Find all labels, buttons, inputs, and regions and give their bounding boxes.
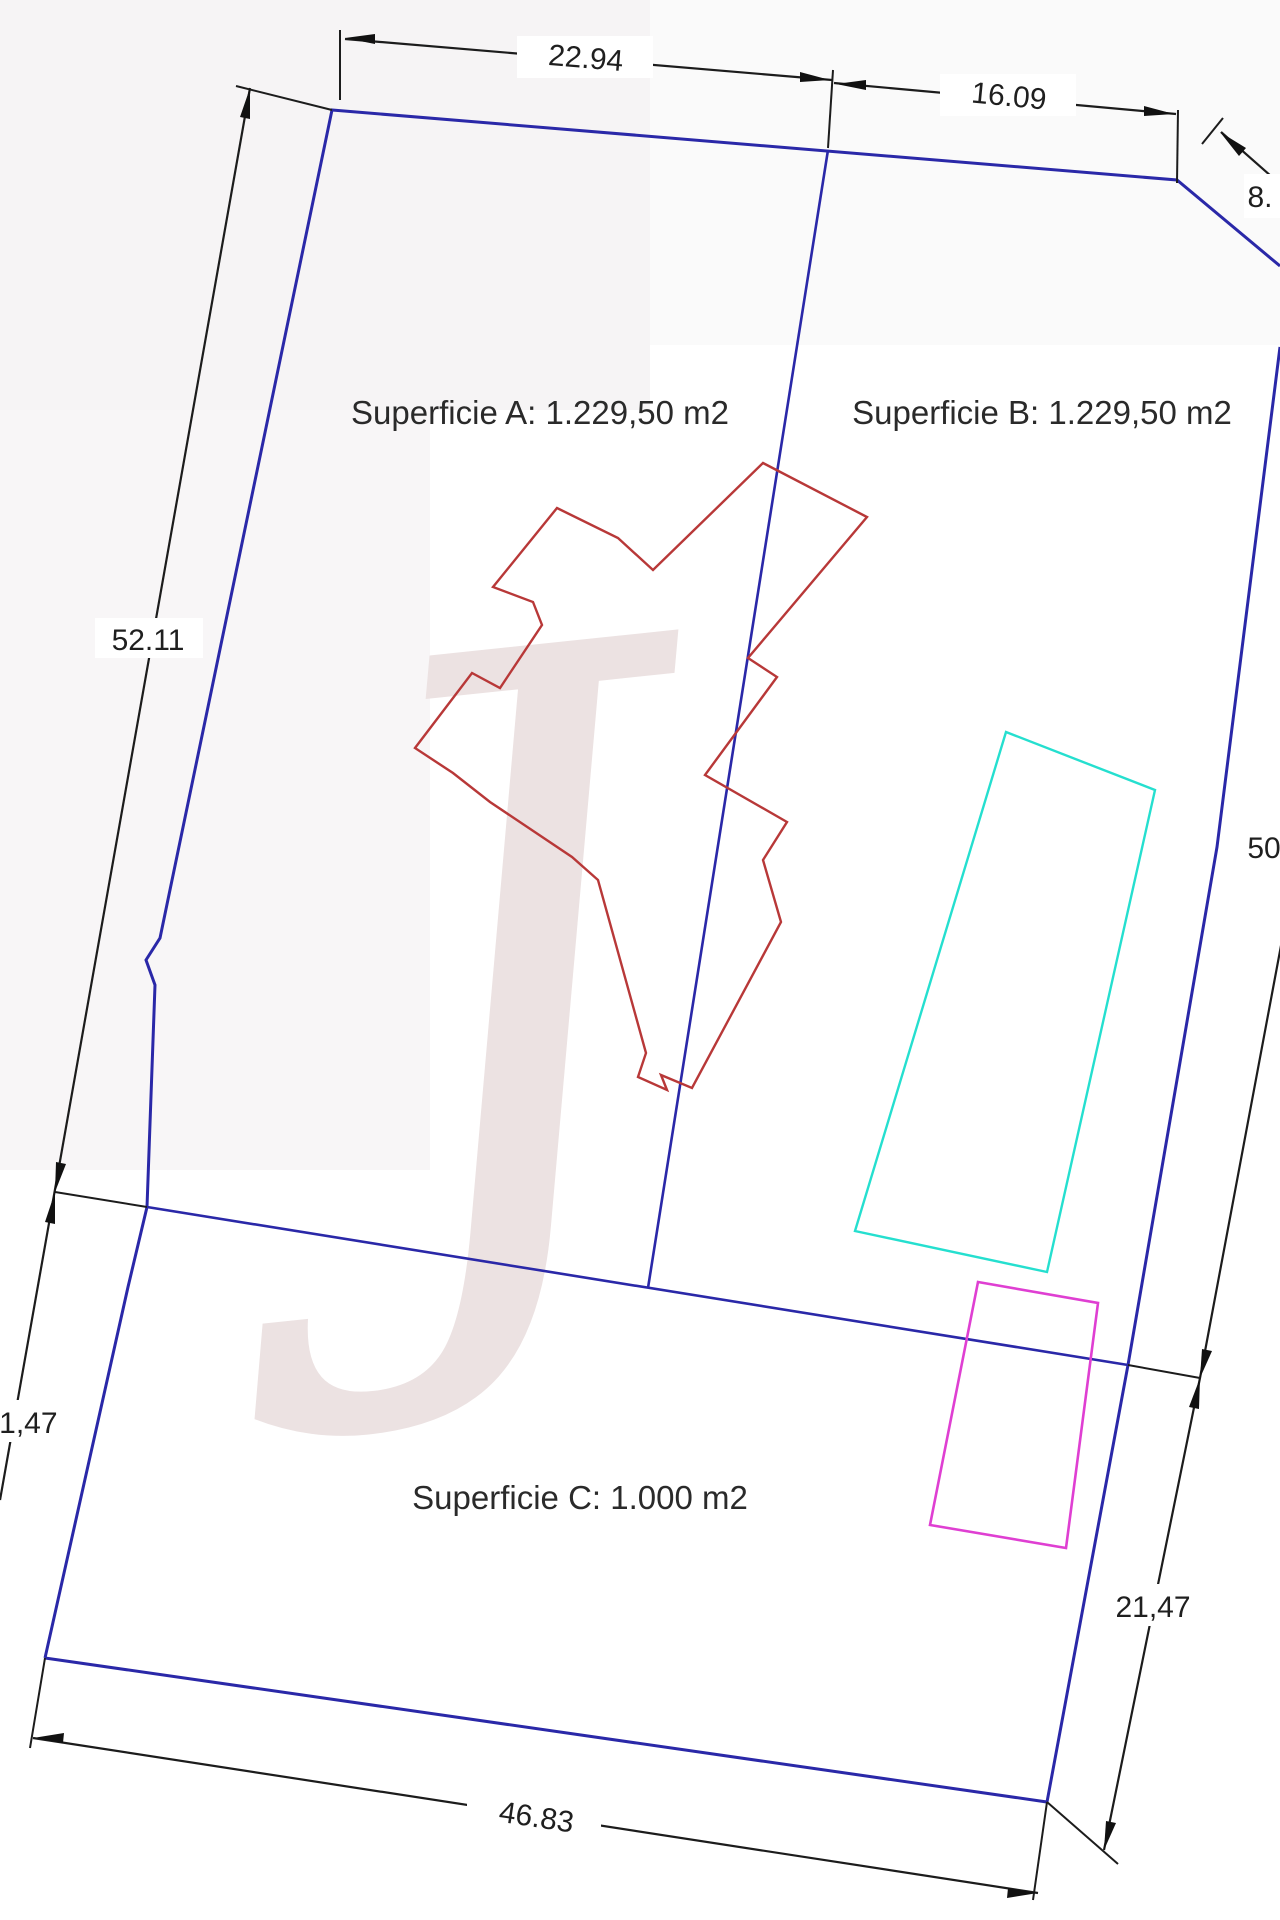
arrowhead [1189, 1378, 1200, 1409]
dimension-line-right [1104, 935, 1280, 1850]
divider-bc-extension-right [1128, 1365, 1200, 1378]
arrowhead [45, 1192, 55, 1224]
scan-tint-block [650, 0, 1280, 345]
divider-bc-extension-left [55, 1192, 147, 1207]
magenta-structure-rectangle [930, 1282, 1098, 1548]
dimension-label-left-upper: 52.11 [112, 624, 185, 657]
dimension-label-diagonal: 8. [1247, 181, 1272, 214]
extension-corner-bottom-right-1 [1033, 1802, 1047, 1900]
extension-corner-bottom-left [30, 1658, 45, 1748]
dimension-label-right-lower: 21,47 [1115, 1591, 1190, 1624]
arrowhead [55, 1162, 66, 1192]
arrowhead [1200, 1349, 1212, 1378]
extension-tick-top-right [1177, 110, 1178, 183]
arrowhead [1104, 1821, 1116, 1850]
parcel-a-area-label: Superficie A: 1.229,50 m2 [351, 394, 729, 431]
dimension-label-top-left: 22.94 [547, 39, 625, 78]
cyan-structure-rectangle [855, 732, 1155, 1272]
site-plan-drawing: J [0, 0, 1280, 1920]
parcel-b-area-label: Superficie B: 1.229,50 m2 [852, 394, 1232, 431]
dimension-label-left-lower: 21,47 [0, 1407, 58, 1440]
plan-canvas: J [0, 0, 1280, 1920]
parcel-c-area-label: Superficie C: 1.000 m2 [412, 1479, 748, 1516]
dimension-label-right-upper: 50 [1247, 832, 1280, 865]
